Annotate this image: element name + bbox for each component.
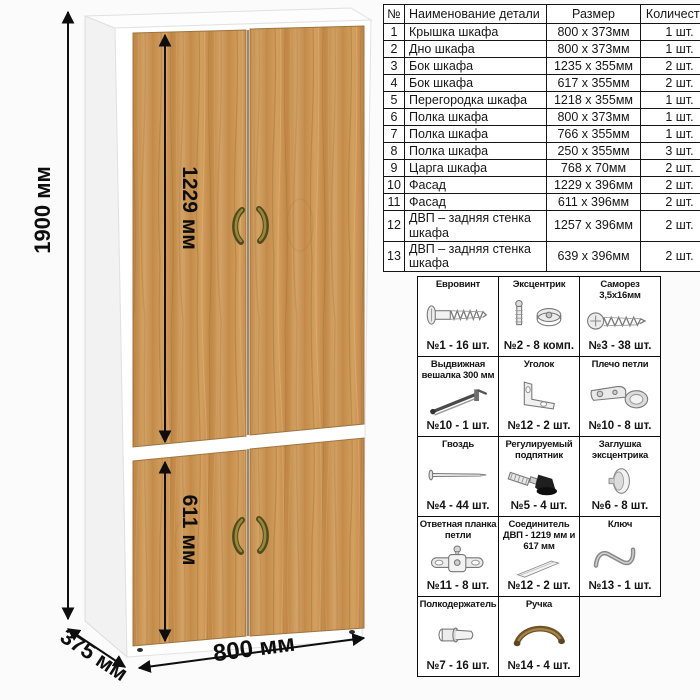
part-number: 9 <box>384 160 405 177</box>
hinge-plate-icon <box>419 541 497 580</box>
hardware-item-count: №4 - 44 шт. <box>427 500 490 513</box>
eccentric-icon <box>500 290 578 340</box>
hardware-item-count: №7 - 16 шт. <box>427 660 490 673</box>
hardware-item: Саморез 3,5х16мм№3 - 38 шт. <box>580 277 661 357</box>
parts-table-row: 8 Полка шкафа 250 х 355мм 3 шт. <box>384 143 700 160</box>
part-number: 8 <box>384 143 405 160</box>
part-name: Бок шкафа <box>405 58 547 75</box>
hardware-item-label: Уголок <box>524 359 554 370</box>
part-name: Дно шкафа <box>405 41 547 58</box>
part-number: 10 <box>384 177 405 194</box>
hardware-item-label: Ключ <box>608 519 632 530</box>
dimension-height-label: 1900 мм <box>30 166 55 254</box>
part-size: 1218 х 355мм <box>547 92 641 109</box>
col-header-quantity: Количество <box>641 5 700 24</box>
hardware-item-count: №11 - 8 шт. <box>427 580 489 593</box>
hardware-item-label: Ручка <box>526 599 552 610</box>
parts-table-body: 1 Крышка шкафа 800 х 373мм 1 шт. 2 Дно ш… <box>384 24 700 272</box>
part-name: Крышка шкафа <box>405 24 547 41</box>
hardware-item-label: Саморез 3,5х16мм <box>581 279 659 301</box>
hardware-item-count: №6 - 8 шт. <box>592 500 648 513</box>
hardware-item: Уголок№12 - 2 шт. <box>499 357 580 437</box>
part-size: 639 х 396мм <box>547 241 641 272</box>
part-quantity: 2 шт. <box>641 194 700 211</box>
part-name: Полка шкафа <box>405 126 547 143</box>
col-header-size: Размер <box>547 5 641 24</box>
hardware-grid-body: Евровинт№1 - 16 шт.Эксцентрик№2 - 8 комп… <box>418 277 661 677</box>
hardware-item: Ключ№13 - 1 шт. <box>580 517 661 597</box>
part-size: 800 х 373мм <box>547 24 641 41</box>
part-quantity: 1 шт. <box>641 24 700 41</box>
part-size: 1229 х 396мм <box>547 177 641 194</box>
hardware-item: Гвоздь№4 - 44 шт. <box>418 437 499 517</box>
parts-table-row: 2 Дно шкафа 800 х 373мм 1 шт. <box>384 41 700 58</box>
parts-table-row: 10 Фасад 1229 х 396мм 2 шт. <box>384 177 700 194</box>
hardware-item-label: Соединитель ДВП - 1219 мм и 617 мм <box>500 519 578 553</box>
parts-table-row: 12 ДВП – задняя стенка шкафа 1257 х 396м… <box>384 211 700 242</box>
part-quantity: 2 шт. <box>641 75 700 92</box>
handle-icon <box>500 610 578 660</box>
cap-icon <box>581 461 659 500</box>
parts-table-row: 9 Царга шкафа 768 х 70мм 2 шт. <box>384 160 700 177</box>
hardware-item: Эксцентрик№2 - 8 комп. <box>499 277 580 357</box>
part-number: 1 <box>384 24 405 41</box>
hardware-item: Евровинт№1 - 16 шт. <box>418 277 499 357</box>
dimension-lower-door-label: 611 мм <box>178 495 201 566</box>
hardware-item-count: №13 - 1 шт. <box>589 580 652 593</box>
parts-table-header-row: № Наименование детали Размер Количество <box>384 5 700 24</box>
hardware-item: Соединитель ДВП - 1219 мм и 617 мм№12 - … <box>499 517 580 597</box>
part-number: 4 <box>384 75 405 92</box>
part-name: ДВП – задняя стенка шкафа <box>405 211 547 242</box>
hardware-item: Заглушка эксцентрика№6 - 8 шт. <box>580 437 661 517</box>
hardware-item-count: №10 - 1 шт. <box>427 420 490 433</box>
part-quantity: 1 шт. <box>641 126 700 143</box>
hardware-item-label: Выдвижная вешалка 300 мм <box>419 359 497 381</box>
parts-table-row: 6 Полка шкафа 800 х 373мм 1 шт. <box>384 109 700 126</box>
hardware-item: Плечо петли№10 - 8 шт. <box>580 357 661 437</box>
hardware-item-label: Евровинт <box>436 279 480 290</box>
hardware-item-label: Гвоздь <box>442 439 474 450</box>
part-number: 7 <box>384 126 405 143</box>
col-header-number: № <box>384 5 405 24</box>
hardware-grid-row: Ответная планка петли№11 - 8 шт.Соединит… <box>418 517 661 597</box>
hardware-item-count: №12 - 2 шт. <box>508 420 571 433</box>
part-number: 12 <box>384 211 405 242</box>
hardware-item-label: Эксцентрик <box>513 279 566 290</box>
part-quantity: 2 шт. <box>641 160 700 177</box>
hardware-item: Ответная планка петли№11 - 8 шт. <box>418 517 499 597</box>
part-number: 2 <box>384 41 405 58</box>
hardware-item-count: №2 - 8 комп. <box>504 340 574 353</box>
part-name: ДВП – задняя стенка шкафа <box>405 241 547 272</box>
part-name: Фасад <box>405 177 547 194</box>
hardware-grid-row: Евровинт№1 - 16 шт.Эксцентрик№2 - 8 комп… <box>418 277 661 357</box>
hardware-item-label: Плечо петли <box>592 359 649 370</box>
part-quantity: 2 шт. <box>641 177 700 194</box>
hdf-connector-icon <box>500 553 578 580</box>
part-name: Царга шкафа <box>405 160 547 177</box>
furniture-assembly-sheet: 1900 мм 1229 мм 611 мм 800 мм 375 мм № Н… <box>0 0 700 700</box>
corner-icon <box>500 370 578 420</box>
part-size: 768 х 70мм <box>547 160 641 177</box>
hardware-item-count: №5 - 4 шт. <box>511 500 567 513</box>
part-quantity: 2 шт. <box>641 211 700 242</box>
part-quantity: 1 шт. <box>641 109 700 126</box>
part-number: 13 <box>384 241 405 272</box>
part-size: 617 х 355мм <box>547 75 641 92</box>
part-quantity: 1 шт. <box>641 41 700 58</box>
foot-icon <box>500 461 578 500</box>
wardrobe-illustration: 1900 мм 1229 мм 611 мм 800 мм 375 мм <box>0 0 410 700</box>
hardware-item-count: №14 - 4 шт. <box>508 660 571 673</box>
part-name: Полка шкафа <box>405 143 547 160</box>
hanger-icon <box>419 381 497 420</box>
part-number: 3 <box>384 58 405 75</box>
part-number: 6 <box>384 109 405 126</box>
nail-icon <box>419 450 497 500</box>
hardware-item-label: Регулируемый подпятник <box>500 439 578 461</box>
eurovint-icon <box>419 290 497 340</box>
col-header-name: Наименование детали <box>405 5 547 24</box>
part-quantity: 3 шт. <box>641 143 700 160</box>
hinge-arm-icon <box>581 370 659 420</box>
part-size: 1235 х 355мм <box>547 58 641 75</box>
key-icon <box>581 530 659 580</box>
part-number: 11 <box>384 194 405 211</box>
shelf-pin-icon <box>419 610 497 660</box>
hardware-item: Полкодержатель№7 - 16 шт. <box>418 597 499 677</box>
part-quantity: 2 шт. <box>641 58 700 75</box>
empty-cell <box>580 597 661 677</box>
hardware-grid-row: Гвоздь№4 - 44 шт.Регулируемый подпятник№… <box>418 437 661 517</box>
hardware-grid-row: Полкодержатель№7 - 16 шт.Ручка№14 - 4 шт… <box>418 597 661 677</box>
wardrobe-foot <box>137 648 143 652</box>
hardware-item: Выдвижная вешалка 300 мм№10 - 1 шт. <box>418 357 499 437</box>
hardware-item-count: №12 - 2 шт. <box>508 580 571 593</box>
parts-table-row: 13 ДВП – задняя стенка шкафа 639 х 396мм… <box>384 241 700 272</box>
part-name: Фасад <box>405 194 547 211</box>
part-size: 250 х 355мм <box>547 143 641 160</box>
hardware-grid: Евровинт№1 - 16 шт.Эксцентрик№2 - 8 комп… <box>417 276 661 677</box>
hardware-item-label: Заглушка эксцентрика <box>581 439 659 461</box>
samorez-icon <box>581 301 659 340</box>
parts-table-row: 11 Фасад 611 х 396мм 2 шт. <box>384 194 700 211</box>
parts-table-row: 4 Бок шкафа 617 х 355мм 2 шт. <box>384 75 700 92</box>
parts-table: № Наименование детали Размер Количество … <box>383 4 700 272</box>
hardware-item: Регулируемый подпятник№5 - 4 шт. <box>499 437 580 517</box>
part-name: Перегородка шкафа <box>405 92 547 109</box>
hardware-grid-row: Выдвижная вешалка 300 мм№10 - 1 шт.Уголо… <box>418 357 661 437</box>
part-name: Полка шкафа <box>405 109 547 126</box>
hardware-item: Ручка№14 - 4 шт. <box>499 597 580 677</box>
hardware-item-label: Полкодержатель <box>420 599 497 610</box>
part-quantity: 1 шт. <box>641 92 700 109</box>
hardware-item-label: Ответная планка петли <box>419 519 497 541</box>
parts-table-row: 7 Полка шкафа 766 х 355мм 1 шт. <box>384 126 700 143</box>
parts-table-row: 1 Крышка шкафа 800 х 373мм 1 шт. <box>384 24 700 41</box>
wardrobe-foot <box>349 630 355 634</box>
part-quantity: 2 шт. <box>641 241 700 272</box>
part-size: 800 х 373мм <box>547 41 641 58</box>
hardware-item-count: №1 - 16 шт. <box>427 340 490 353</box>
part-size: 766 х 355мм <box>547 126 641 143</box>
part-number: 5 <box>384 92 405 109</box>
part-size: 611 х 396мм <box>547 194 641 211</box>
part-size: 1257 х 396мм <box>547 211 641 242</box>
part-size: 800 х 373мм <box>547 109 641 126</box>
part-name: Бок шкафа <box>405 75 547 92</box>
parts-table-row: 3 Бок шкафа 1235 х 355мм 2 шт. <box>384 58 700 75</box>
hardware-item-count: №3 - 38 шт. <box>589 340 652 353</box>
hardware-item-count: №10 - 8 шт. <box>589 420 652 433</box>
dimension-upper-door-label: 1229 мм <box>178 166 201 250</box>
parts-table-row: 5 Перегородка шкафа 1218 х 355мм 1 шт. <box>384 92 700 109</box>
